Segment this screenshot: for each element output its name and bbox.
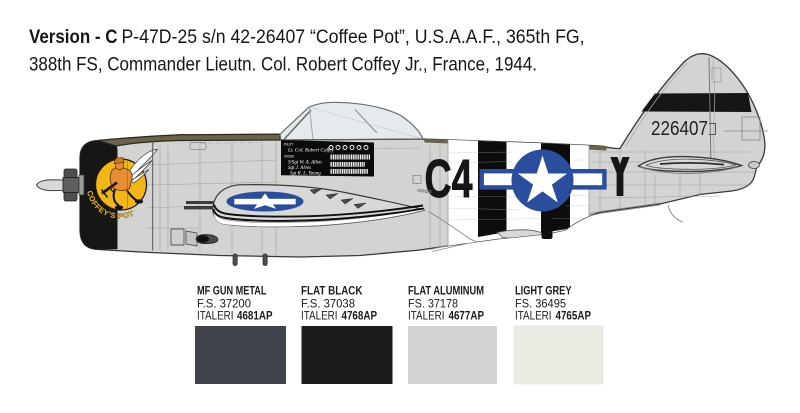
svg-text:Sgt R. L. Young: Sgt R. L. Young	[290, 172, 321, 177]
svg-text:ITALERI4768AP: ITALERI4768AP	[301, 309, 377, 323]
svg-text:Lt. Col. Robert Coffey: Lt. Col. Robert Coffey	[287, 147, 335, 154]
svg-text:Sgt J. Alves: Sgt J. Alves	[288, 166, 311, 171]
svg-text:ITALERI4681AP: ITALERI4681AP	[197, 309, 273, 323]
svg-text:C4: C4	[425, 149, 473, 209]
svg-text:226407: 226407	[651, 118, 708, 140]
svg-text:ITALERI4765AP: ITALERI4765AP	[515, 309, 591, 323]
svg-text:P-47D-25 s/n 42-26407 “Coffee: P-47D-25 s/n 42-26407 “Coffee Pot”, U.S.…	[122, 26, 585, 48]
svg-text:Version - C: Version - C	[29, 26, 118, 48]
svg-text:388th FS, Commander Lieutn. Co: 388th FS, Commander Lieutn. Col. Robert …	[29, 54, 537, 76]
svg-text:ITALERI4677AP: ITALERI4677AP	[408, 309, 484, 323]
svg-text:CREW: CREW	[284, 155, 294, 159]
svg-text:PILOT: PILOT	[284, 143, 293, 147]
svg-text:S/Sgt W. A. Allen: S/Sgt W. A. Allen	[288, 161, 322, 166]
